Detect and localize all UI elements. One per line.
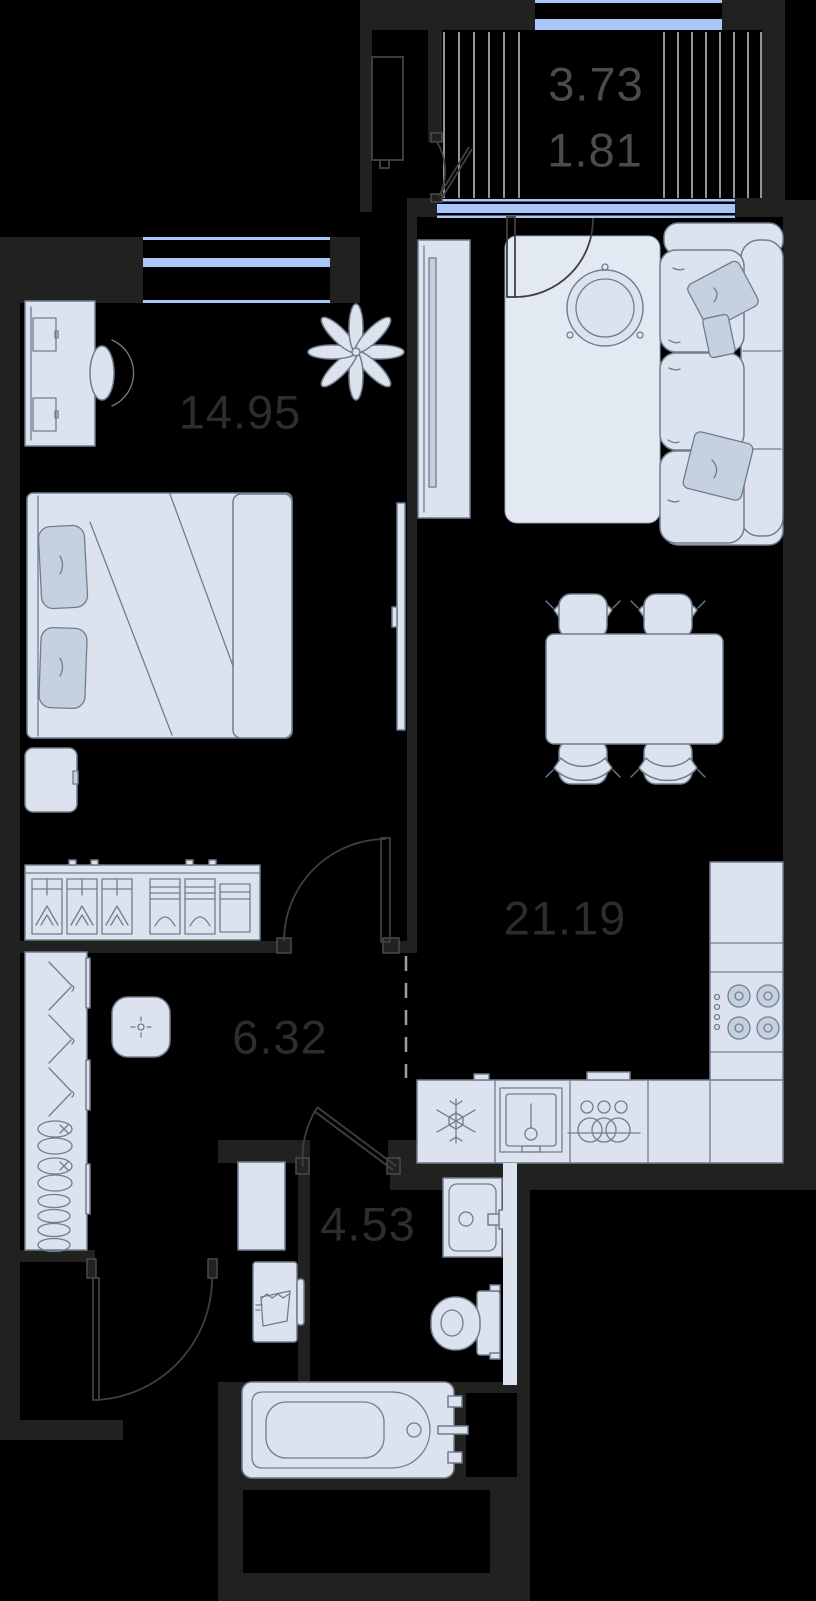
wall-segment xyxy=(762,0,785,215)
wall-segment xyxy=(428,30,442,142)
burner-icon xyxy=(757,1017,779,1039)
bedroom-door-leaf xyxy=(381,838,390,942)
wall-segment xyxy=(360,0,535,30)
wall-segment xyxy=(0,1420,123,1440)
pouf xyxy=(112,997,170,1057)
wall-segment xyxy=(330,237,360,303)
bathroom-door xyxy=(296,1107,400,1174)
wardrobe xyxy=(25,952,90,1252)
chair xyxy=(559,594,607,638)
entrance-door xyxy=(87,1259,217,1400)
tv-cabinet xyxy=(418,240,470,518)
wall-segment xyxy=(783,200,816,1190)
desk-chair xyxy=(90,340,134,406)
bedroom-area-label: 14.95 xyxy=(179,385,302,440)
balcony-door xyxy=(431,133,472,202)
living-kitchen-area-label: 21.19 xyxy=(504,891,627,946)
bathroom-area-label: 4.53 xyxy=(320,1197,415,1252)
wall-segment xyxy=(298,1140,310,1382)
balcony-window xyxy=(535,0,722,30)
bed-footboard xyxy=(233,494,292,738)
bedroom-door xyxy=(277,838,399,953)
niche xyxy=(466,1393,517,1477)
pipe-chase xyxy=(503,1163,517,1385)
living-room-window xyxy=(437,199,735,218)
hallway-area-label: 6.32 xyxy=(232,1010,327,1065)
floor-plan-canvas xyxy=(0,0,816,1601)
bathroom-door-leaf xyxy=(314,1107,396,1170)
dresser xyxy=(25,860,260,940)
balcony-area-total-label: 3.73 xyxy=(548,57,643,112)
wall-segment xyxy=(0,1250,95,1262)
desk xyxy=(25,301,95,446)
wall-segment xyxy=(0,237,143,303)
dining-set xyxy=(546,594,723,784)
hallway xyxy=(25,952,217,1400)
washing-machine xyxy=(253,1262,304,1342)
plant-icon xyxy=(308,304,404,400)
balcony-area-reduced-label: 1.81 xyxy=(547,123,642,178)
wall-segment xyxy=(20,941,283,953)
bathroom-sink xyxy=(443,1178,506,1257)
burner-icon xyxy=(757,985,779,1007)
nightstand xyxy=(25,748,78,812)
kitchen-counter xyxy=(417,1072,783,1163)
burner-icon xyxy=(728,1017,750,1039)
burner-icon xyxy=(728,985,750,1007)
shaft xyxy=(243,1490,490,1573)
living-tv xyxy=(429,258,436,487)
wall-segment xyxy=(398,941,417,953)
wall-segment xyxy=(360,0,372,212)
toilet xyxy=(431,1285,500,1359)
chair xyxy=(644,594,692,638)
wall-segment xyxy=(407,215,417,953)
bedroom-window xyxy=(143,237,330,303)
floor-plan: 3.73 1.81 14.95 21.19 6.32 4.53 xyxy=(0,0,816,1601)
wall-segment xyxy=(735,198,783,217)
entrance-door-leaf xyxy=(93,1278,99,1400)
bath-cabinet xyxy=(238,1162,285,1250)
double-bed xyxy=(27,493,292,738)
ac-unit xyxy=(372,57,403,168)
sofa xyxy=(660,223,783,545)
dining-table xyxy=(546,634,723,744)
living-room xyxy=(418,217,783,784)
tub-faucet-icon xyxy=(438,1426,468,1434)
bedroom-tv xyxy=(392,503,405,730)
bathtub xyxy=(242,1382,468,1478)
